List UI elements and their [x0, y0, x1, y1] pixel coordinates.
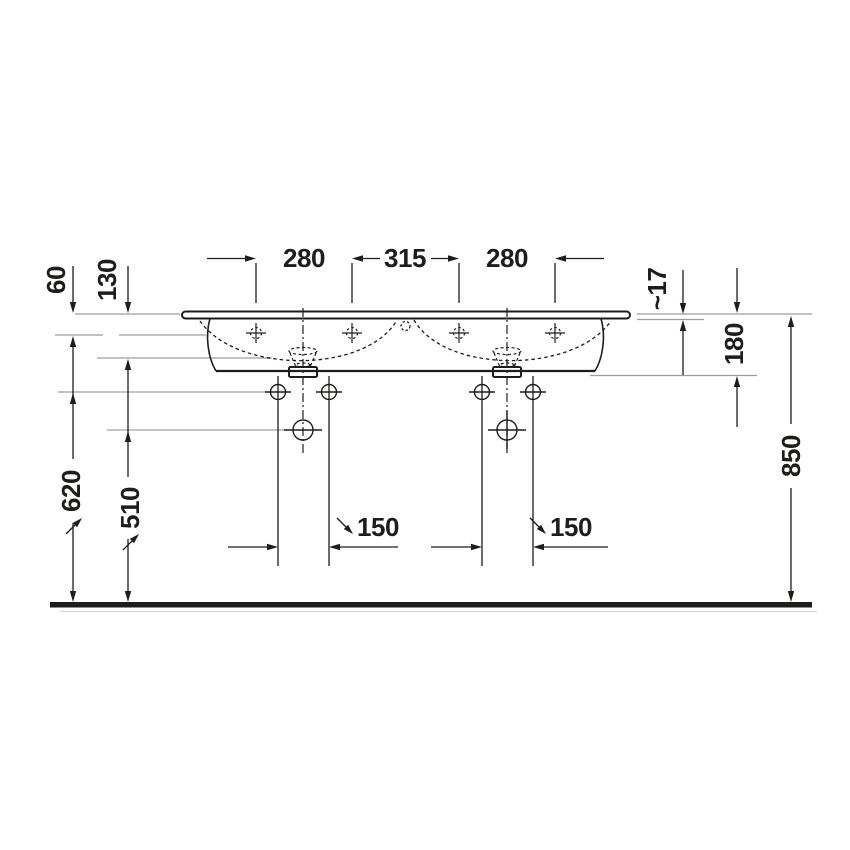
center-lines [303, 308, 507, 455]
dim-label-fixing-spacing-right: 150 [550, 514, 592, 540]
dim-label-tap-spacing-center: 315 [384, 245, 426, 271]
dim-label-rim-height-total: 850 [778, 435, 804, 477]
dim-label-tap-spacing-left: 280 [283, 245, 325, 271]
dim-label-rim-to-basin-line: 130 [94, 259, 120, 301]
mounting-holes [265, 385, 546, 400]
drain-funnels [289, 348, 521, 368]
dim-label-body-depth: 180 [721, 323, 747, 365]
dimension-arrowheads [70, 255, 794, 602]
dim-label-rim-to-tap-axis: 60 [43, 266, 69, 294]
floor-line [50, 602, 817, 612]
dim-label-tap-spacing-right: 280 [486, 245, 528, 271]
technical-drawing-canvas: 280 315 280 60 130 ~17 180 850 620 510 1… [0, 0, 850, 850]
drawing-linework [0, 0, 850, 850]
dim-label-fixing-hole-height: 620 [58, 470, 84, 512]
faucet-hole-marks [246, 323, 565, 343]
center-hole-marking [401, 322, 410, 331]
drain-pipe-circles [284, 411, 526, 449]
dim-label-fixing-spacing-left: 150 [357, 514, 399, 540]
sink-outline [182, 312, 630, 378]
dim-label-rim-thickness: ~17 [644, 268, 670, 311]
basin-bowl-contours [200, 320, 611, 361]
dim-label-drain-height: 510 [117, 487, 143, 529]
